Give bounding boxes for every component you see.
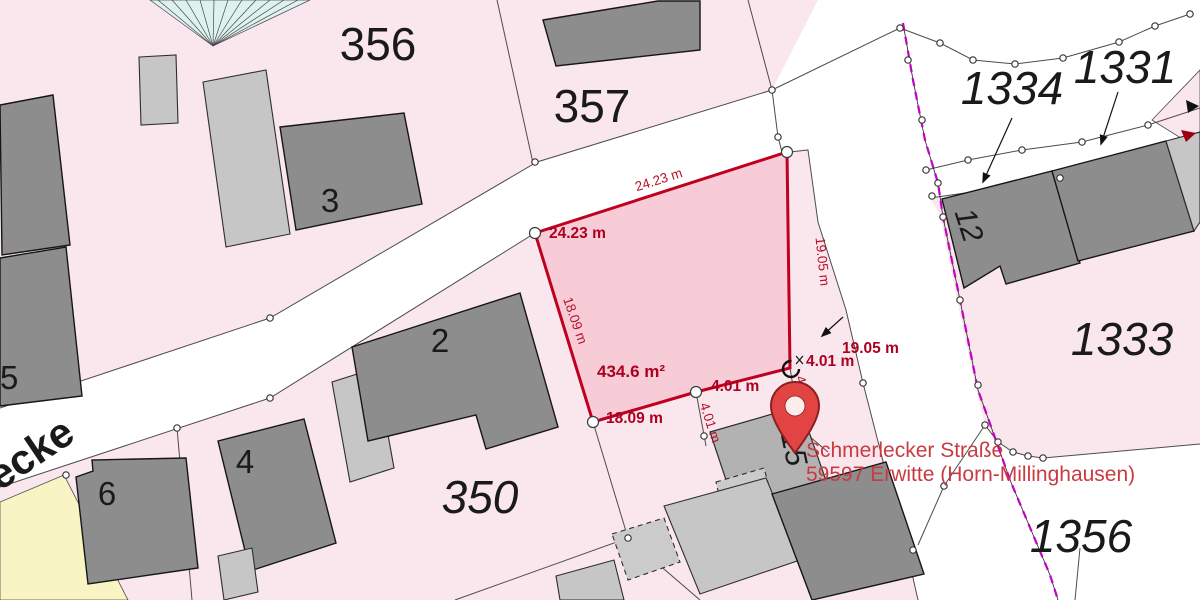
parcel-corner-vertex <box>782 147 793 158</box>
building <box>139 55 178 125</box>
address-line2: 59597 Erwitte (Horn-Millinghausen) <box>806 463 1135 486</box>
parcel-label-350: 350 <box>442 471 519 523</box>
building-label-6: 6 <box>98 475 116 512</box>
dim-left-vertex: 18.09 m <box>606 410 663 427</box>
parcel-label-1333: 1333 <box>1071 313 1174 365</box>
address-line1: Schmerlecker Straße <box>806 439 1003 462</box>
dim-top-vertex: 24.23 m <box>549 225 606 242</box>
parcel-label-1331: 1331 <box>1074 41 1176 93</box>
building-6 <box>76 458 198 584</box>
parcel-corner-vertex <box>588 417 599 428</box>
parcel-corner-vertex <box>691 387 702 398</box>
parcel-label-1356: 1356 <box>1030 510 1133 562</box>
parcel-label-357: 357 <box>554 80 631 132</box>
building-label-2: 2 <box>431 322 449 359</box>
parcel-label-356: 356 <box>340 18 417 70</box>
building-label-4: 4 <box>236 443 254 480</box>
parcel-label-1334: 1334 <box>961 62 1063 114</box>
parcel-corner-vertex <box>530 228 541 239</box>
building <box>218 548 258 600</box>
dim-small-1: 4.01 m <box>711 378 759 395</box>
area-label: 434.6 m² <box>597 362 665 381</box>
building-label-3: 3 <box>321 182 339 219</box>
cadastral-map[interactable]: 356 357 350 1334 1331 1333 1356 3 2 4 5 … <box>0 0 1200 600</box>
building-label-5: 5 <box>0 359 18 396</box>
dim-small-2: 4.01 m <box>806 353 854 370</box>
